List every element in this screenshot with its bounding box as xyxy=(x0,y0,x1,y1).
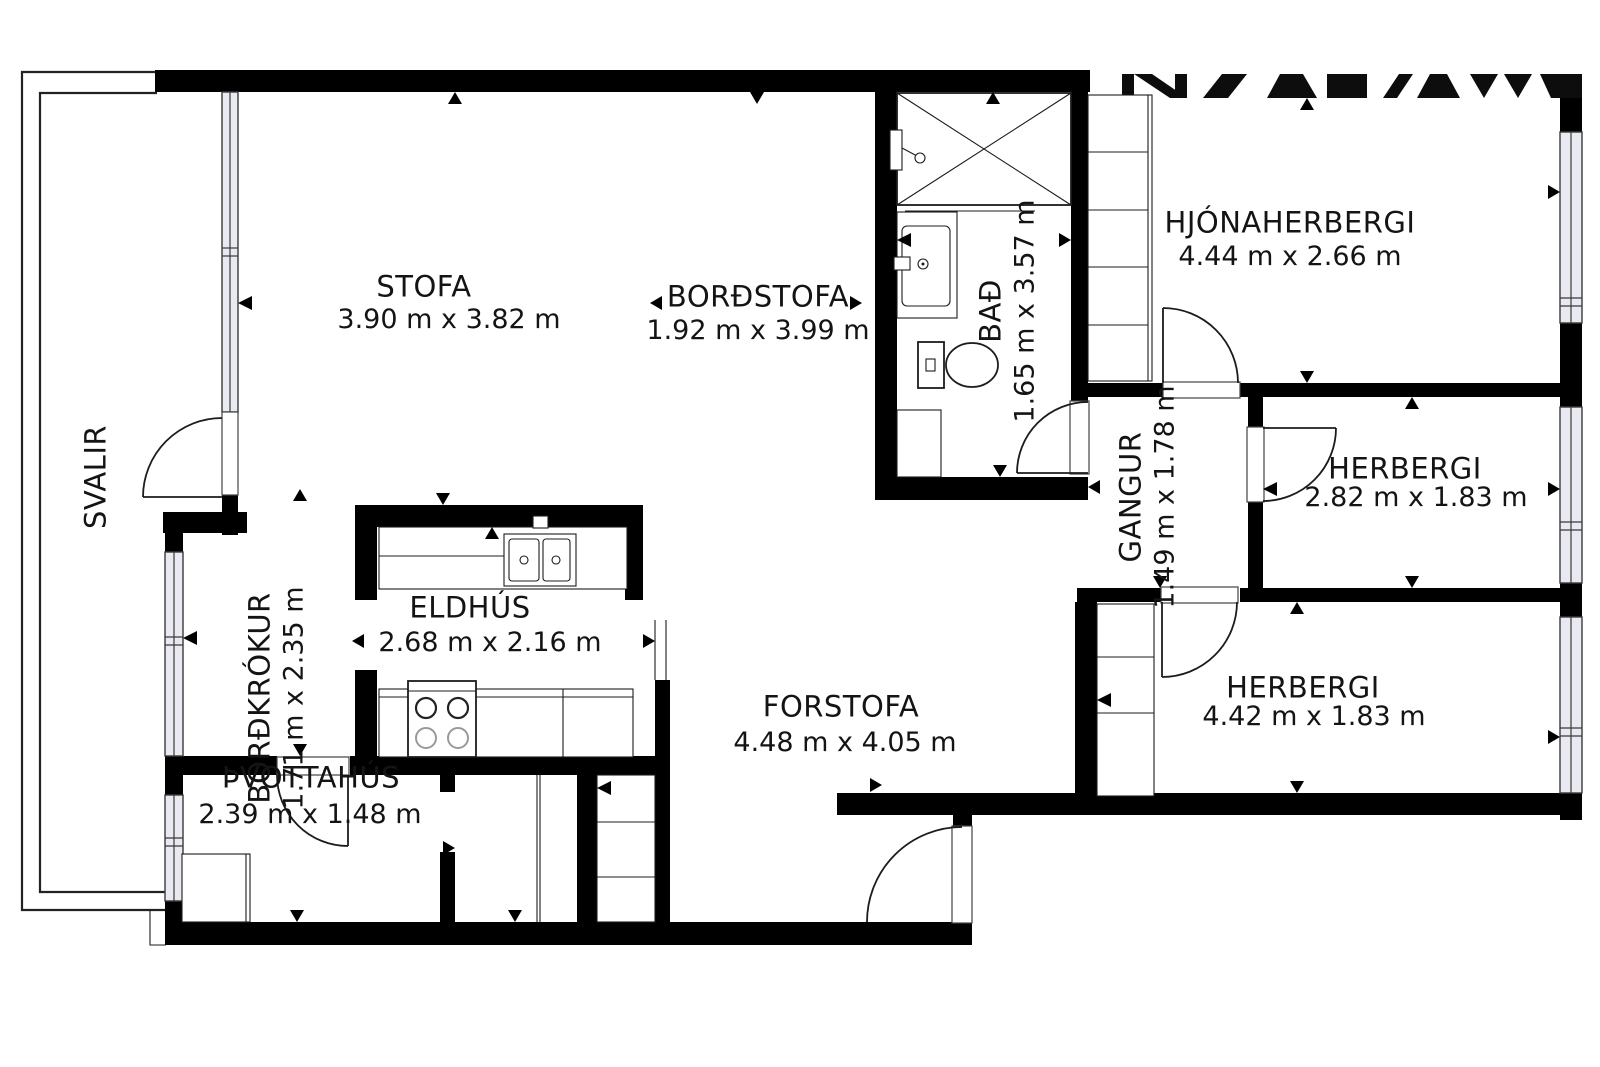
bathroom-sink xyxy=(894,212,957,318)
bathroom-cabinet xyxy=(897,410,941,477)
window-stofa xyxy=(222,92,238,412)
window-hjonaherbergi xyxy=(1560,132,1582,323)
room-label-bad-name: BAÐ xyxy=(974,199,1009,422)
room-label-gangur-name: GANGUR xyxy=(1114,385,1149,608)
kitchen-counter-bottom xyxy=(379,681,633,757)
room-label-bordkrokur-name: BORÐKRÓKUR xyxy=(243,586,278,809)
room-label-hjonaherbergi: HJÓNAHERBERGI xyxy=(1165,206,1416,241)
room-dims-gangur: 1.49 m x 1.78 m xyxy=(1149,385,1183,608)
room-label-bordstofa: BORÐSTOFA xyxy=(667,280,849,315)
room-dims-forstofa: 4.48 m x 4.05 m xyxy=(733,726,956,760)
room-label-bordkrokur: BORÐKRÓKUR 1.71 m x 2.35 m xyxy=(243,586,312,809)
window-bordkrokur xyxy=(165,552,183,756)
room-dims-bordkrokur: 1.71 m x 2.35 m xyxy=(278,586,312,809)
entrance-door xyxy=(867,826,972,923)
floorplan-drawing xyxy=(0,0,1600,1067)
room-dims-hjonaherbergi: 4.44 m x 2.66 m xyxy=(1178,240,1401,274)
room-label-stofa: STOFA xyxy=(376,270,471,305)
kitchen-counter-top xyxy=(379,516,627,589)
shower xyxy=(890,93,1071,211)
partial-logo-watermark xyxy=(1122,74,1582,98)
floorplan: STOFA 3.90 m x 3.82 m BORÐSTOFA 1.92 m x… xyxy=(0,0,1600,1067)
window-herbergi-small xyxy=(1560,407,1582,583)
room-dims-herbergi-small: 2.82 m x 1.83 m xyxy=(1304,481,1527,515)
room-label-gangur: GANGUR 1.49 m x 1.78 m xyxy=(1114,385,1183,608)
room-dims-bad: 1.65 m x 3.57 m xyxy=(1009,199,1043,422)
balcony-door xyxy=(143,412,238,497)
room-label-forstofa: FORSTOFA xyxy=(763,690,919,725)
room-label-bad: BAÐ 1.65 m x 3.57 m xyxy=(974,199,1043,422)
room-dims-stofa: 3.90 m x 3.82 m xyxy=(337,303,560,337)
window-thvottahus xyxy=(165,795,183,901)
wardrobe-master-bedroom xyxy=(1088,95,1152,381)
washing-machine xyxy=(182,854,250,922)
window-herbergi-large xyxy=(1560,617,1582,793)
room-dims-bordstofa: 1.92 m x 3.99 m xyxy=(646,314,869,348)
room-dims-eldhus: 2.68 m x 2.16 m xyxy=(378,626,601,660)
room-label-svalir: SVALIR xyxy=(79,425,114,529)
room-dims-herbergi-large: 4.42 m x 1.83 m xyxy=(1202,700,1425,734)
stove xyxy=(408,681,476,757)
room-label-eldhus: ELDHÚS xyxy=(409,591,530,626)
